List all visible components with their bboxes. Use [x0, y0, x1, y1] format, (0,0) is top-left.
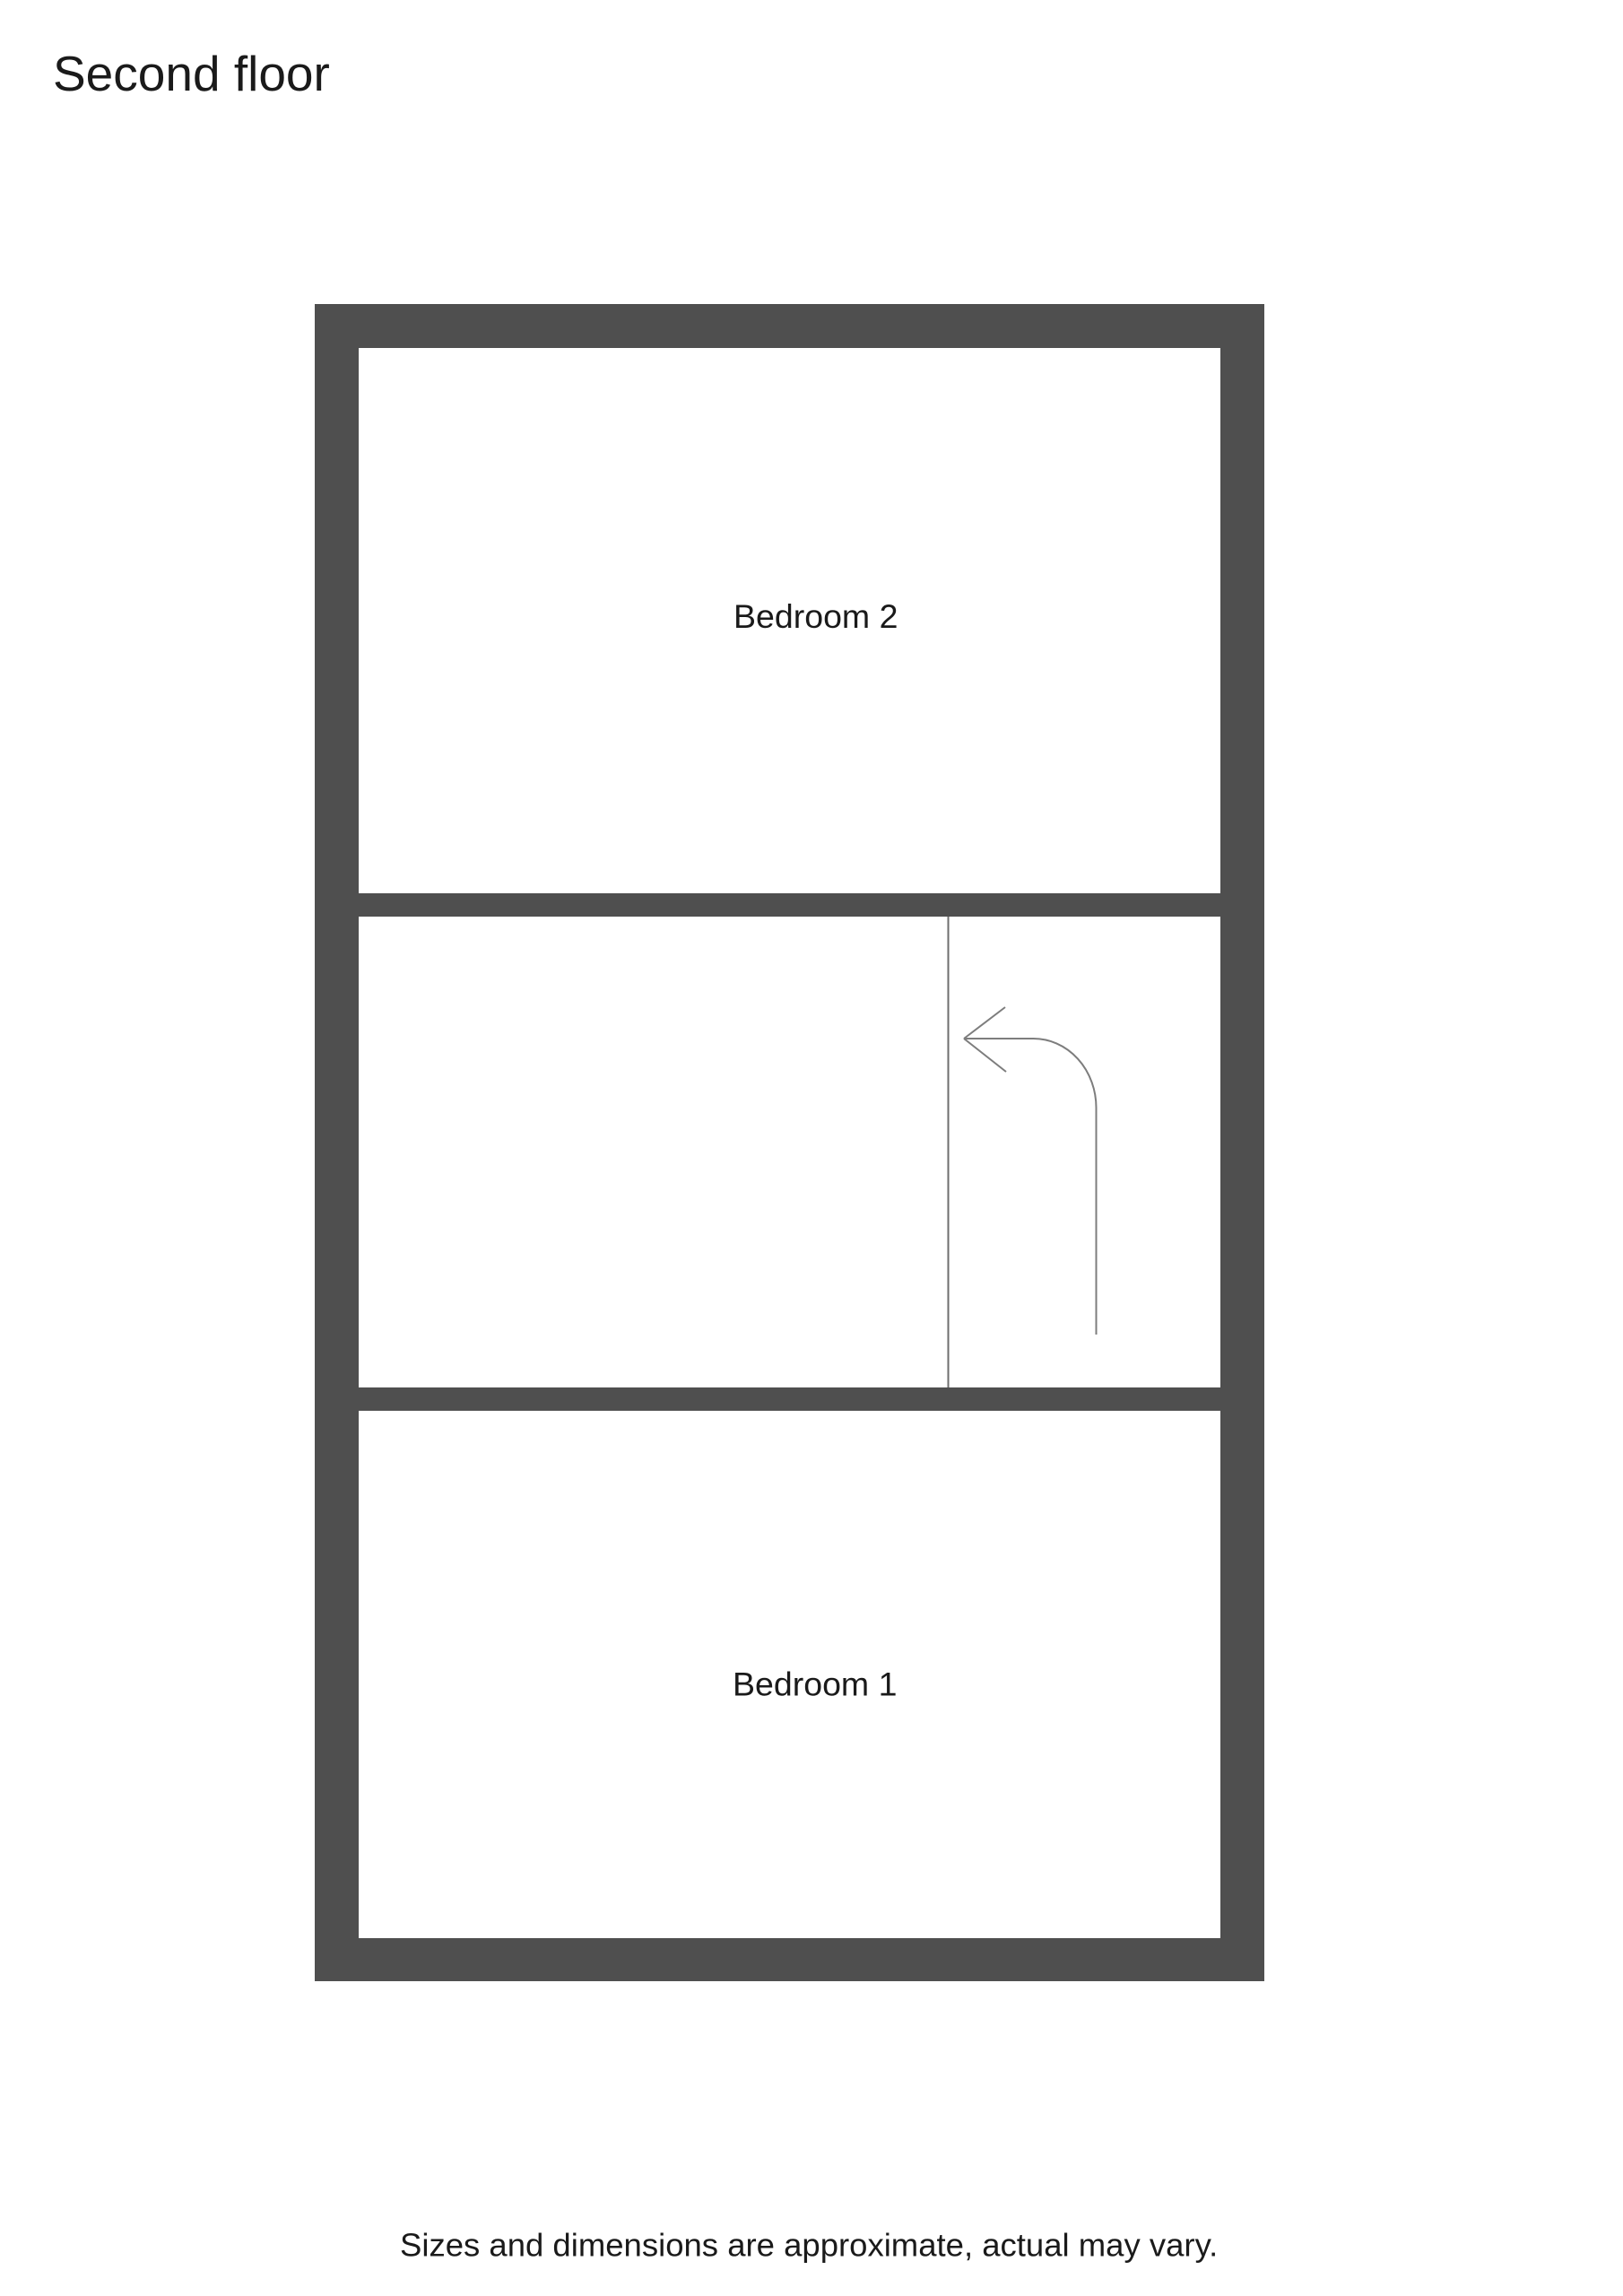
svg-text:Bedroom 1: Bedroom 1 [733, 1665, 897, 1703]
svg-text:Sizes and dimensions are appro: Sizes and dimensions are approximate, ac… [400, 2227, 1218, 2264]
svg-text:Second floor: Second floor [53, 46, 330, 101]
svg-text:Bedroom 2: Bedroom 2 [733, 597, 898, 635]
